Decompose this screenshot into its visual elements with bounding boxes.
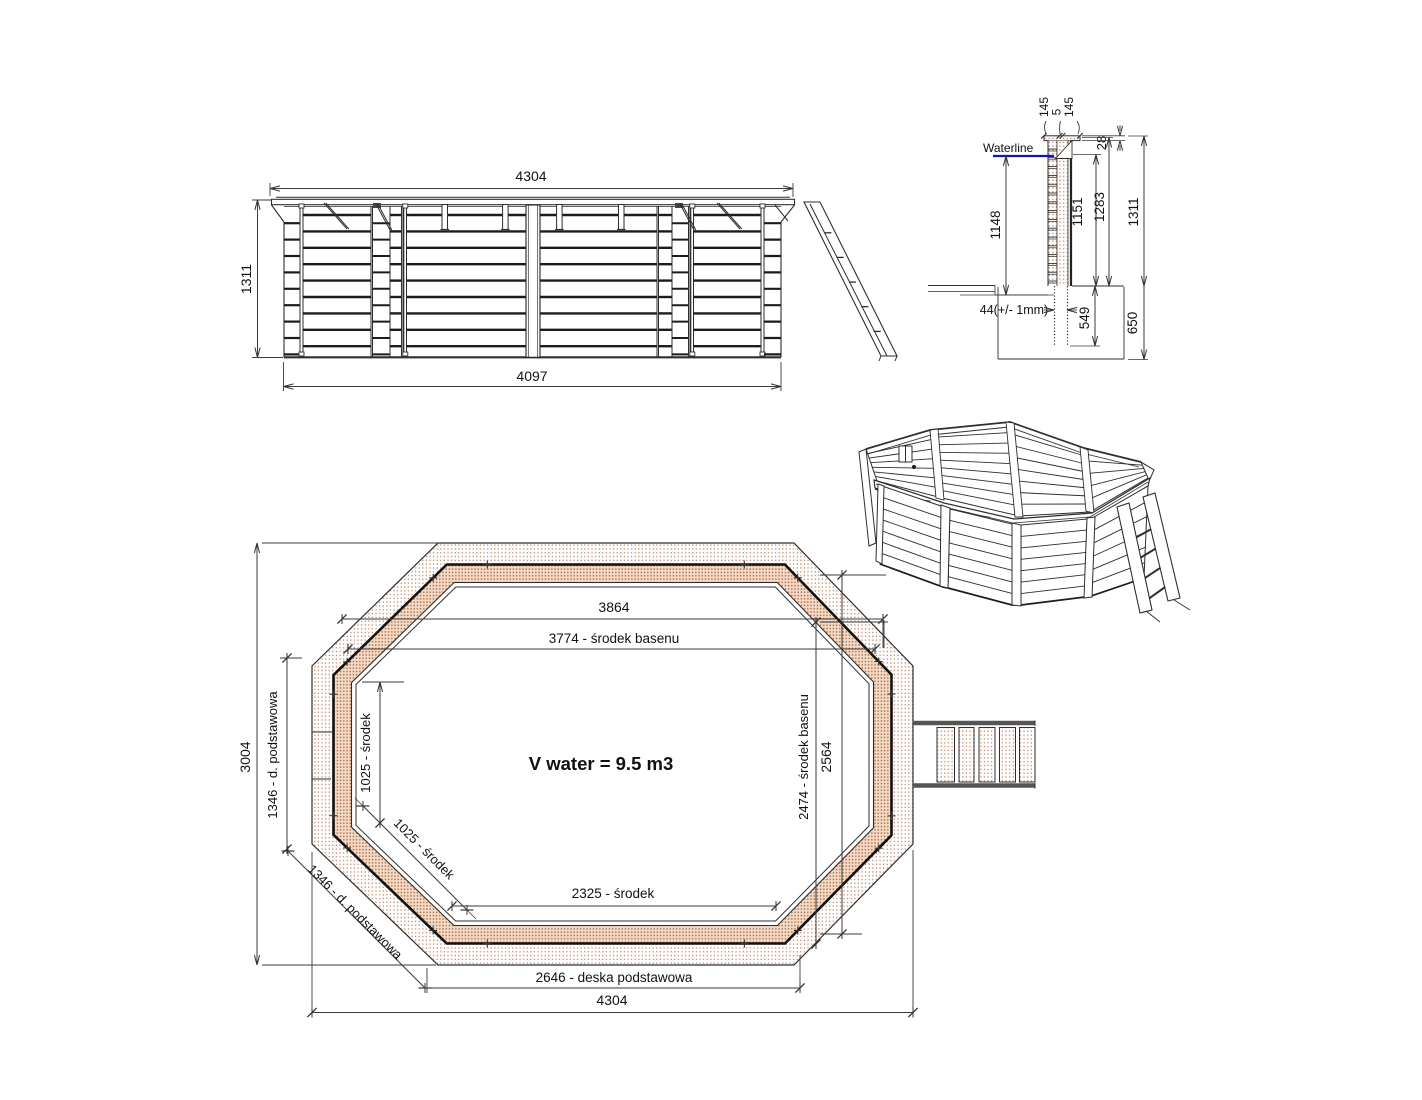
svg-text:28: 28 — [1094, 136, 1109, 150]
svg-text:2564: 2564 — [818, 741, 834, 772]
svg-text:4304: 4304 — [515, 168, 546, 184]
svg-text:1283: 1283 — [1092, 192, 1107, 222]
svg-text:2325 - środek: 2325 - środek — [572, 886, 655, 901]
svg-text:1151: 1151 — [1070, 197, 1085, 226]
svg-text:1311: 1311 — [238, 264, 254, 294]
svg-text:V water = 9.5 m3: V water = 9.5 m3 — [529, 753, 674, 774]
svg-text:145: 145 — [1062, 97, 1076, 117]
svg-text:1346 - d. podstawowa: 1346 - d. podstawowa — [265, 691, 280, 819]
svg-text:2474 - środek basenu: 2474 - środek basenu — [796, 694, 811, 820]
svg-text:2646 - deska podstawowa: 2646 - deska podstawowa — [536, 970, 693, 985]
svg-text:44(+/- 1mm): 44(+/- 1mm) — [980, 303, 1048, 317]
svg-text:Waterline: Waterline — [983, 141, 1034, 155]
svg-text:650: 650 — [1125, 312, 1140, 335]
svg-text:1311: 1311 — [1126, 197, 1141, 226]
svg-text:4097: 4097 — [516, 368, 547, 384]
svg-text:4304: 4304 — [596, 992, 627, 1008]
svg-text:3004: 3004 — [237, 741, 253, 772]
svg-text:1148: 1148 — [988, 210, 1003, 239]
svg-text:3774 - środek basenu: 3774 - środek basenu — [549, 631, 680, 646]
svg-text:549: 549 — [1077, 307, 1092, 330]
svg-text:3864: 3864 — [598, 599, 629, 615]
svg-text:1025 - środek: 1025 - środek — [358, 713, 373, 793]
